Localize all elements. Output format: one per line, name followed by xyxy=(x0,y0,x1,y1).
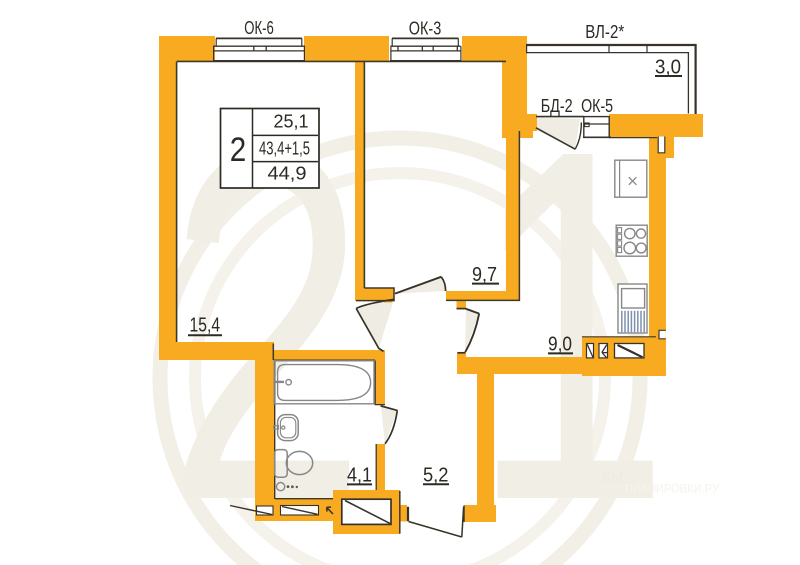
svg-text:5,2: 5,2 xyxy=(423,464,449,486)
svg-text:ОК-6: ОК-6 xyxy=(244,18,274,38)
svg-text:ВЛ-2*: ВЛ-2* xyxy=(585,22,624,42)
svg-text:ПЛАНИРОВКИ.РУ: ПЛАНИРОВКИ.РУ xyxy=(625,482,719,496)
svg-text:БД-2: БД-2 xyxy=(541,96,573,116)
svg-text:15,4: 15,4 xyxy=(190,315,221,337)
svg-text:ОК-5: ОК-5 xyxy=(581,96,613,116)
svg-text:ОК-3: ОК-3 xyxy=(409,19,442,39)
svg-text:4,1: 4,1 xyxy=(347,465,372,487)
svg-text:25,1: 25,1 xyxy=(274,112,309,132)
svg-text:SM: SM xyxy=(602,469,623,485)
svg-text:44,9: 44,9 xyxy=(268,163,307,184)
svg-text:2: 2 xyxy=(230,131,247,169)
svg-text:9,0: 9,0 xyxy=(548,334,572,356)
svg-text:43,4+1,5: 43,4+1,5 xyxy=(259,139,310,159)
